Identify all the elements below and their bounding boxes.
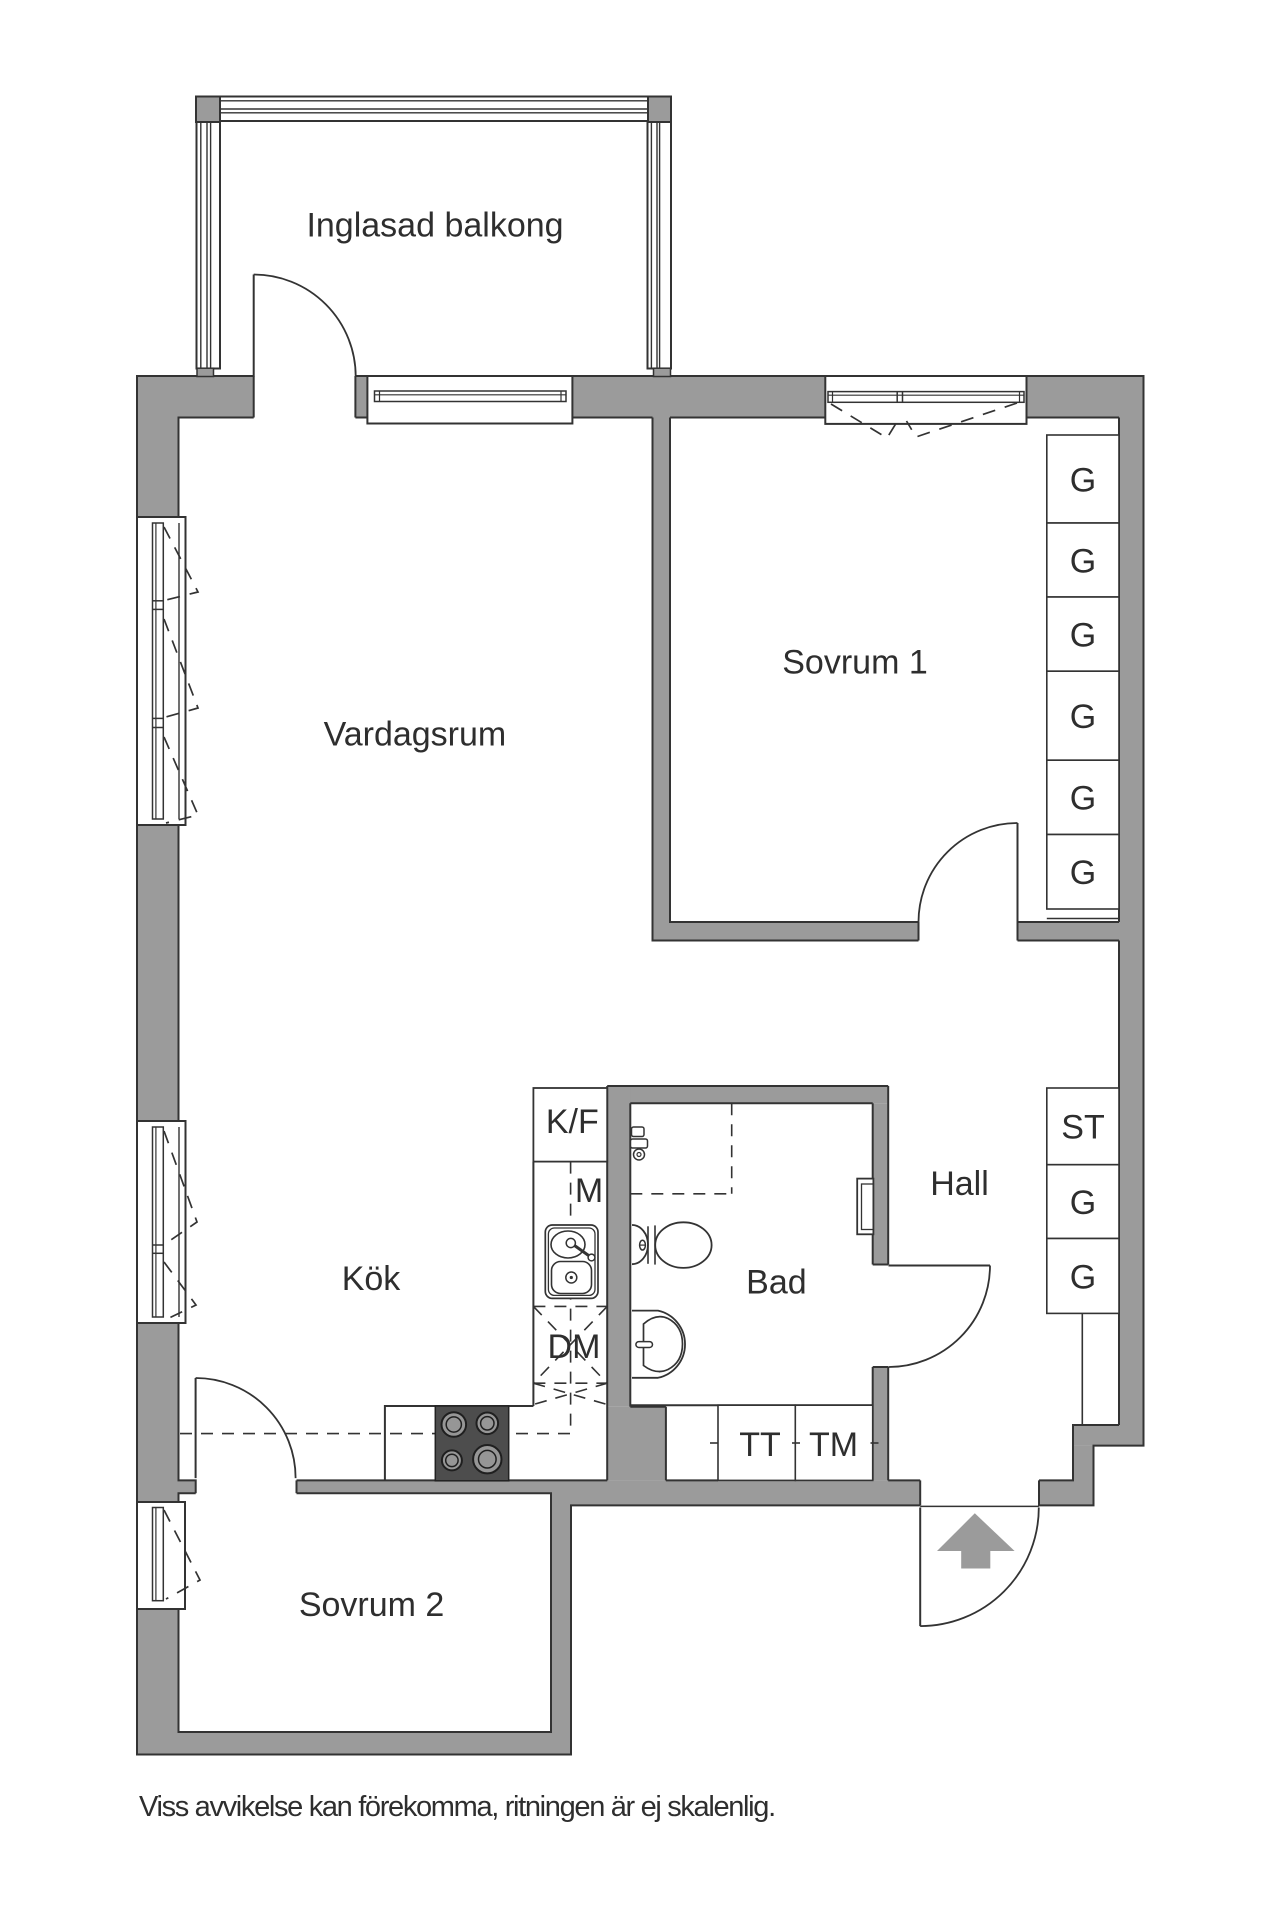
svg-text:Viss avvikelse kan förekomma,: Viss avvikelse kan förekomma, ritningen … — [139, 1791, 775, 1823]
svg-text:Vardagsrum: Vardagsrum — [324, 716, 507, 754]
svg-text:G: G — [1070, 1258, 1096, 1296]
svg-text:Sovrum 2: Sovrum 2 — [299, 1586, 445, 1624]
svg-text:Sovrum 1: Sovrum 1 — [782, 644, 928, 682]
svg-text:Bad: Bad — [746, 1264, 807, 1302]
svg-text:G: G — [1070, 1184, 1096, 1222]
svg-text:DM: DM — [548, 1328, 601, 1366]
svg-text:M: M — [575, 1172, 603, 1210]
svg-text:Hall: Hall — [930, 1165, 989, 1203]
svg-text:TT: TT — [739, 1426, 781, 1464]
svg-text:G: G — [1070, 780, 1096, 818]
svg-text:K/F: K/F — [546, 1103, 599, 1141]
svg-text:G: G — [1070, 616, 1096, 654]
svg-text:G: G — [1070, 698, 1096, 736]
svg-text:ST: ST — [1061, 1109, 1104, 1147]
svg-text:G: G — [1070, 854, 1096, 892]
svg-text:TM: TM — [809, 1426, 858, 1464]
svg-text:Kök: Kök — [342, 1260, 402, 1298]
svg-text:Inglasad balkong: Inglasad balkong — [306, 207, 563, 245]
svg-text:G: G — [1070, 542, 1096, 580]
svg-text:G: G — [1070, 461, 1096, 499]
